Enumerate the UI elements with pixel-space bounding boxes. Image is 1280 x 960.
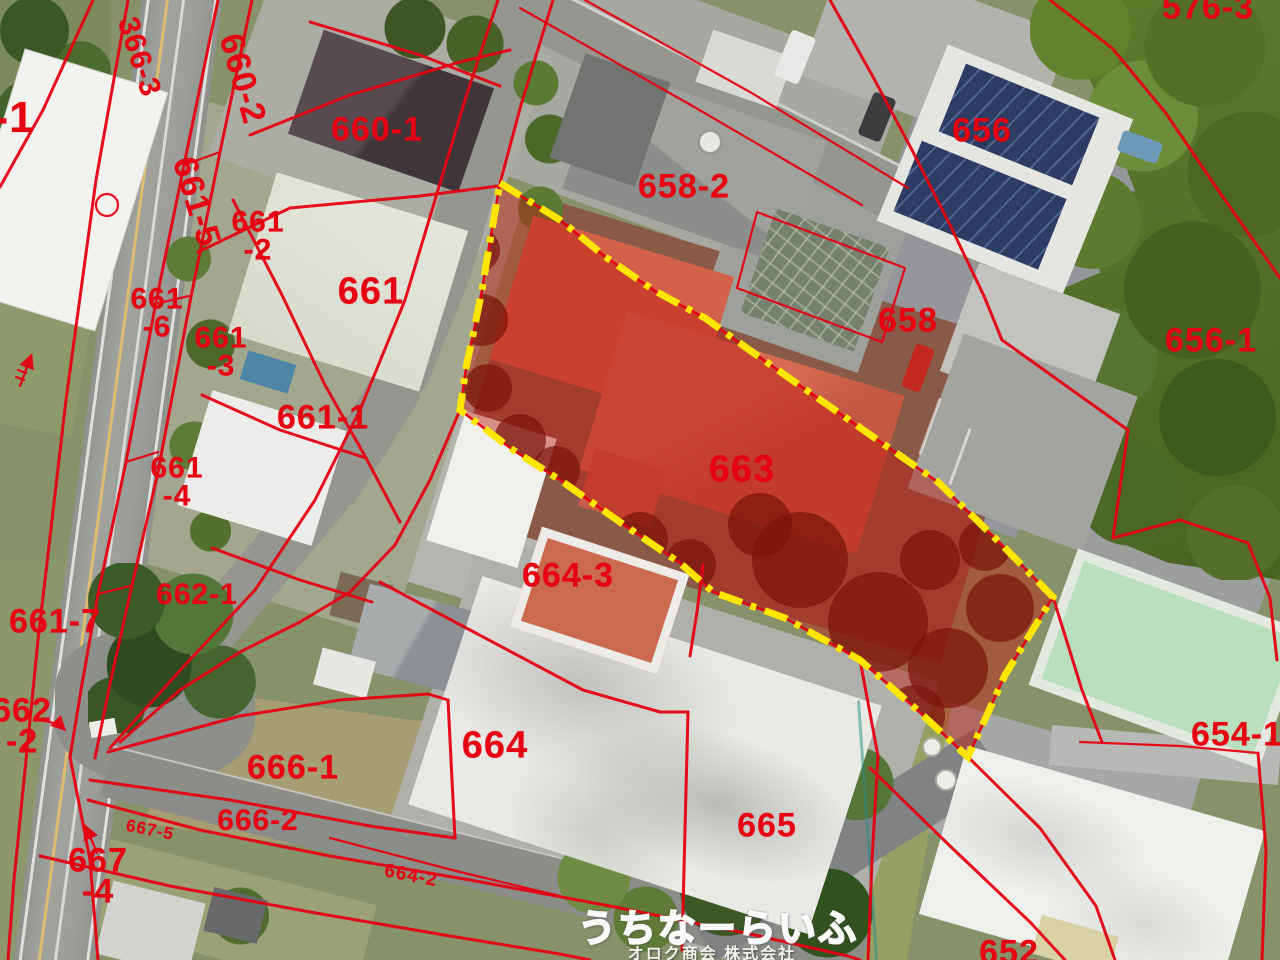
survey-circle-symbol (96, 194, 118, 216)
leader-arrow-662-2 (44, 721, 64, 729)
cadastral-lines-overlay (0, 0, 1280, 960)
aerial-map: -1366-3660-2660-1661-5661-2661661-6661-3… (0, 0, 1280, 960)
